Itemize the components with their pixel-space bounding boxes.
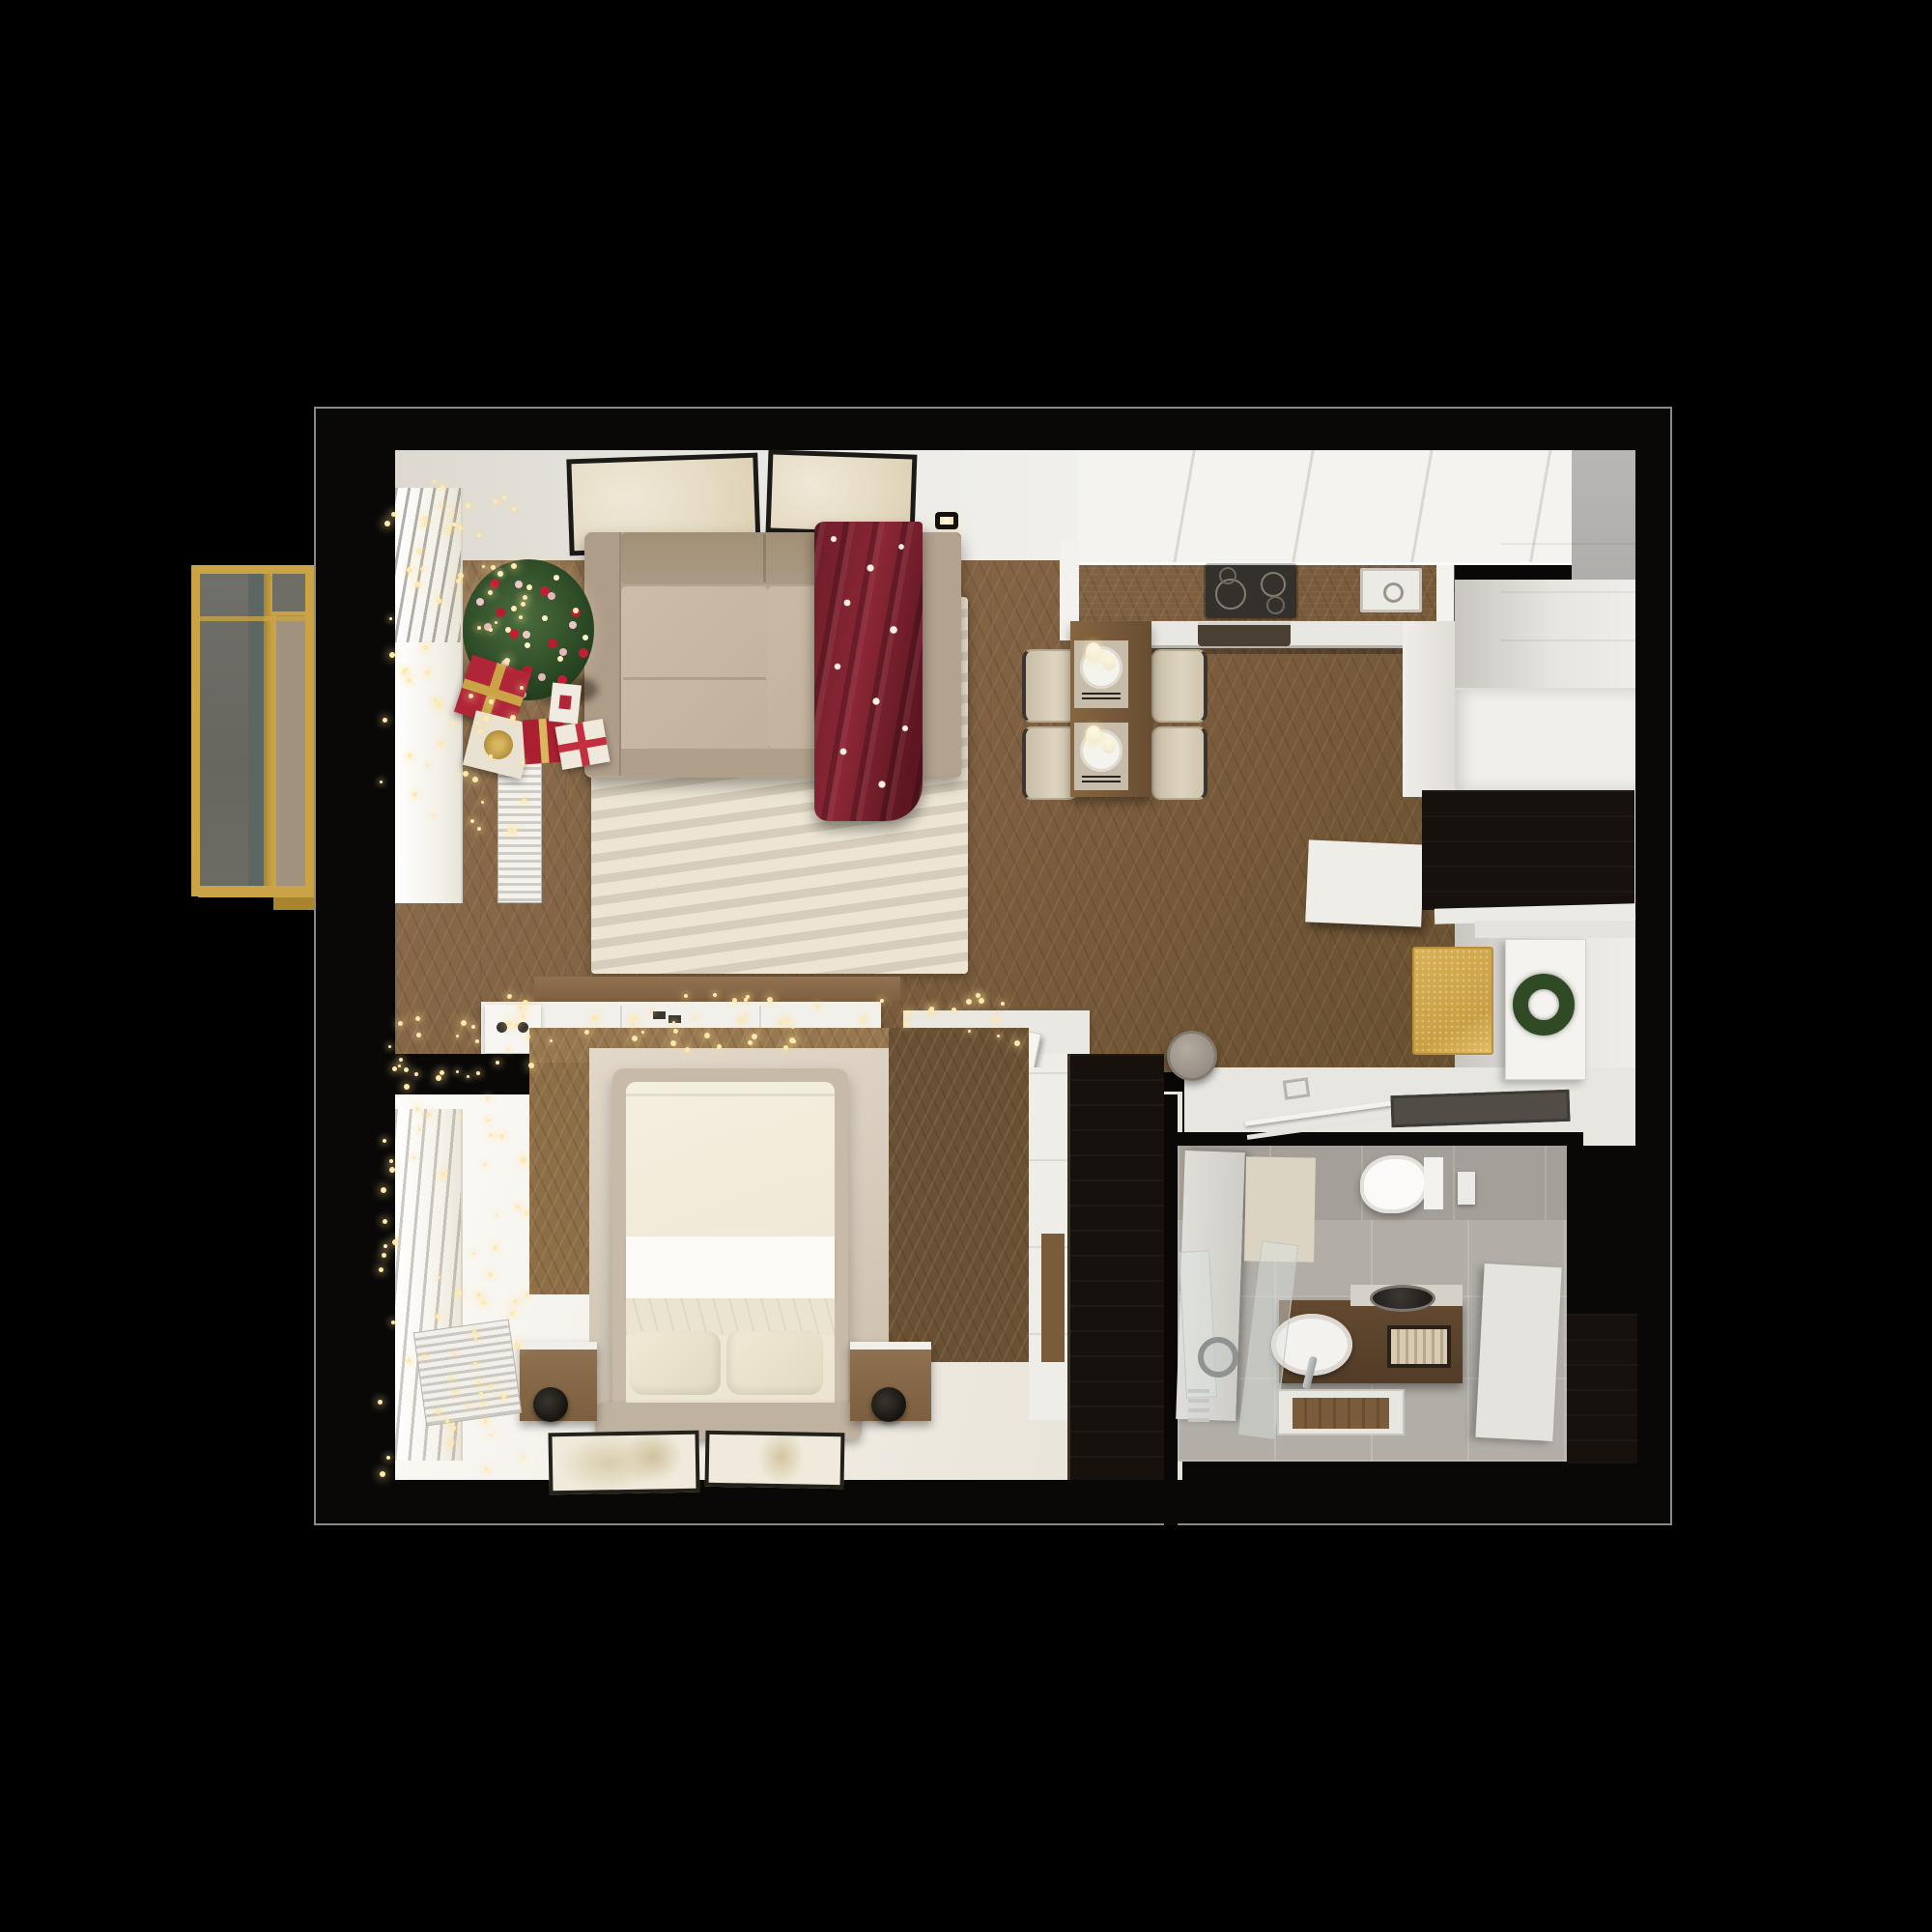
- towel-basket: [1387, 1325, 1451, 1368]
- gold-doormat: [1412, 947, 1493, 1055]
- cutlery-bottom: [1082, 776, 1121, 778]
- sliding-door-handle: [1283, 1077, 1311, 1099]
- dining-chair-bottom-right: [1151, 726, 1207, 800]
- corridor-wall-strip: [1403, 621, 1455, 797]
- living-window-blinds: [395, 488, 461, 642]
- gift-red-mark: [558, 695, 571, 709]
- shower-head: [1198, 1337, 1238, 1378]
- tv-console-wood-shelf: [534, 977, 900, 1002]
- gift-gold-bow: [481, 727, 516, 762]
- balcony-sill: [198, 886, 314, 897]
- shower-valves: [1188, 1389, 1209, 1422]
- sink-drain: [1383, 582, 1404, 603]
- candle-4: [1102, 737, 1116, 753]
- red-snowflake-blanket: [814, 522, 923, 821]
- burner-medium: [1261, 572, 1286, 597]
- gift-white-red-ribbon: [554, 719, 610, 770]
- balcony-door-panel: [272, 611, 305, 888]
- remote-2: [668, 1015, 681, 1023]
- entry-ledge: [1475, 921, 1635, 938]
- tree-blossoms-pink: [476, 598, 484, 606]
- kitchen-tall-cabinets: [1500, 541, 1635, 688]
- bedroom-accent-wall-left: [529, 1063, 589, 1294]
- living-window: [395, 488, 463, 903]
- bedroom-shelf-column: [1029, 1067, 1067, 1420]
- lamp-left: [533, 1387, 568, 1422]
- bed-sheet-band: [626, 1236, 835, 1298]
- cutlery-top: [1082, 693, 1121, 695]
- kitchen-upper-cabinets: [1077, 450, 1572, 565]
- christmas-wreath: [1513, 974, 1575, 1036]
- shelf-wood-inset: [1041, 1234, 1065, 1362]
- burner-small-bottom: [1266, 596, 1285, 614]
- bed-lower-duvet: [626, 1298, 835, 1335]
- gift-ribbon: [538, 719, 549, 763]
- speaker-dot-1: [497, 1022, 507, 1033]
- ceiling-spotlight-2: [935, 512, 958, 529]
- remote-1: [653, 1011, 666, 1019]
- shower-duckboard: [1293, 1398, 1389, 1429]
- bedroom-radiator: [413, 1320, 523, 1427]
- tree-lights: [497, 571, 503, 577]
- bedroom-accent-wall-right: [889, 1028, 1029, 1362]
- candle-3: [1086, 725, 1101, 745]
- dark-floor-mat: [1390, 1090, 1570, 1127]
- cooktop: [1206, 565, 1296, 618]
- kitchen-sink: [1360, 568, 1422, 612]
- flush-plate: [1458, 1172, 1475, 1205]
- kitchen-niche-cabinet: [1452, 688, 1635, 790]
- sofa-chaise-seam: [623, 677, 766, 680]
- sofa-arm-right: [920, 532, 961, 776]
- shower-tray: [1277, 1389, 1405, 1435]
- dining-chair-top-right: [1151, 649, 1207, 723]
- speaker-dot-2: [518, 1022, 528, 1033]
- gift-tiny-white: [549, 683, 582, 724]
- entry-wardrobe: [1422, 790, 1634, 910]
- lamp-right: [871, 1387, 906, 1422]
- dining-table: [1070, 621, 1151, 797]
- burner-small-top: [1219, 567, 1236, 584]
- bathroom-white-panel: [1475, 1264, 1561, 1441]
- gray-pouf: [1167, 1031, 1217, 1081]
- pillow-right: [726, 1331, 823, 1395]
- oven-front: [1198, 622, 1291, 646]
- dark-round-bowl: [1370, 1285, 1435, 1312]
- balcony-sill-tab: [273, 897, 314, 910]
- hallway-bathroom-wall: [1178, 1132, 1583, 1146]
- bed-duvet-fold: [626, 1094, 835, 1096]
- floor-print-1: [548, 1431, 699, 1495]
- sofa-chaise-cushion: [621, 586, 768, 776]
- pillow-left: [630, 1331, 721, 1395]
- floor-print-2: [705, 1431, 845, 1490]
- toilet-bowl: [1360, 1155, 1428, 1213]
- entry-bench: [1305, 839, 1425, 926]
- toilet-tank: [1424, 1157, 1443, 1209]
- bed: [612, 1068, 848, 1424]
- bedroom-bathroom-wall: [1164, 1094, 1178, 1525]
- balcony: [191, 565, 314, 896]
- tree-baubles-red: [490, 579, 499, 588]
- candle-2: [1102, 654, 1116, 670]
- bathroom-storage-cabinet: [1567, 1314, 1637, 1463]
- bedroom-wardrobe: [1067, 1054, 1164, 1480]
- candle-1: [1086, 642, 1101, 662]
- sofa-back-seam: [763, 534, 766, 582]
- balcony-transom-bar: [200, 616, 305, 621]
